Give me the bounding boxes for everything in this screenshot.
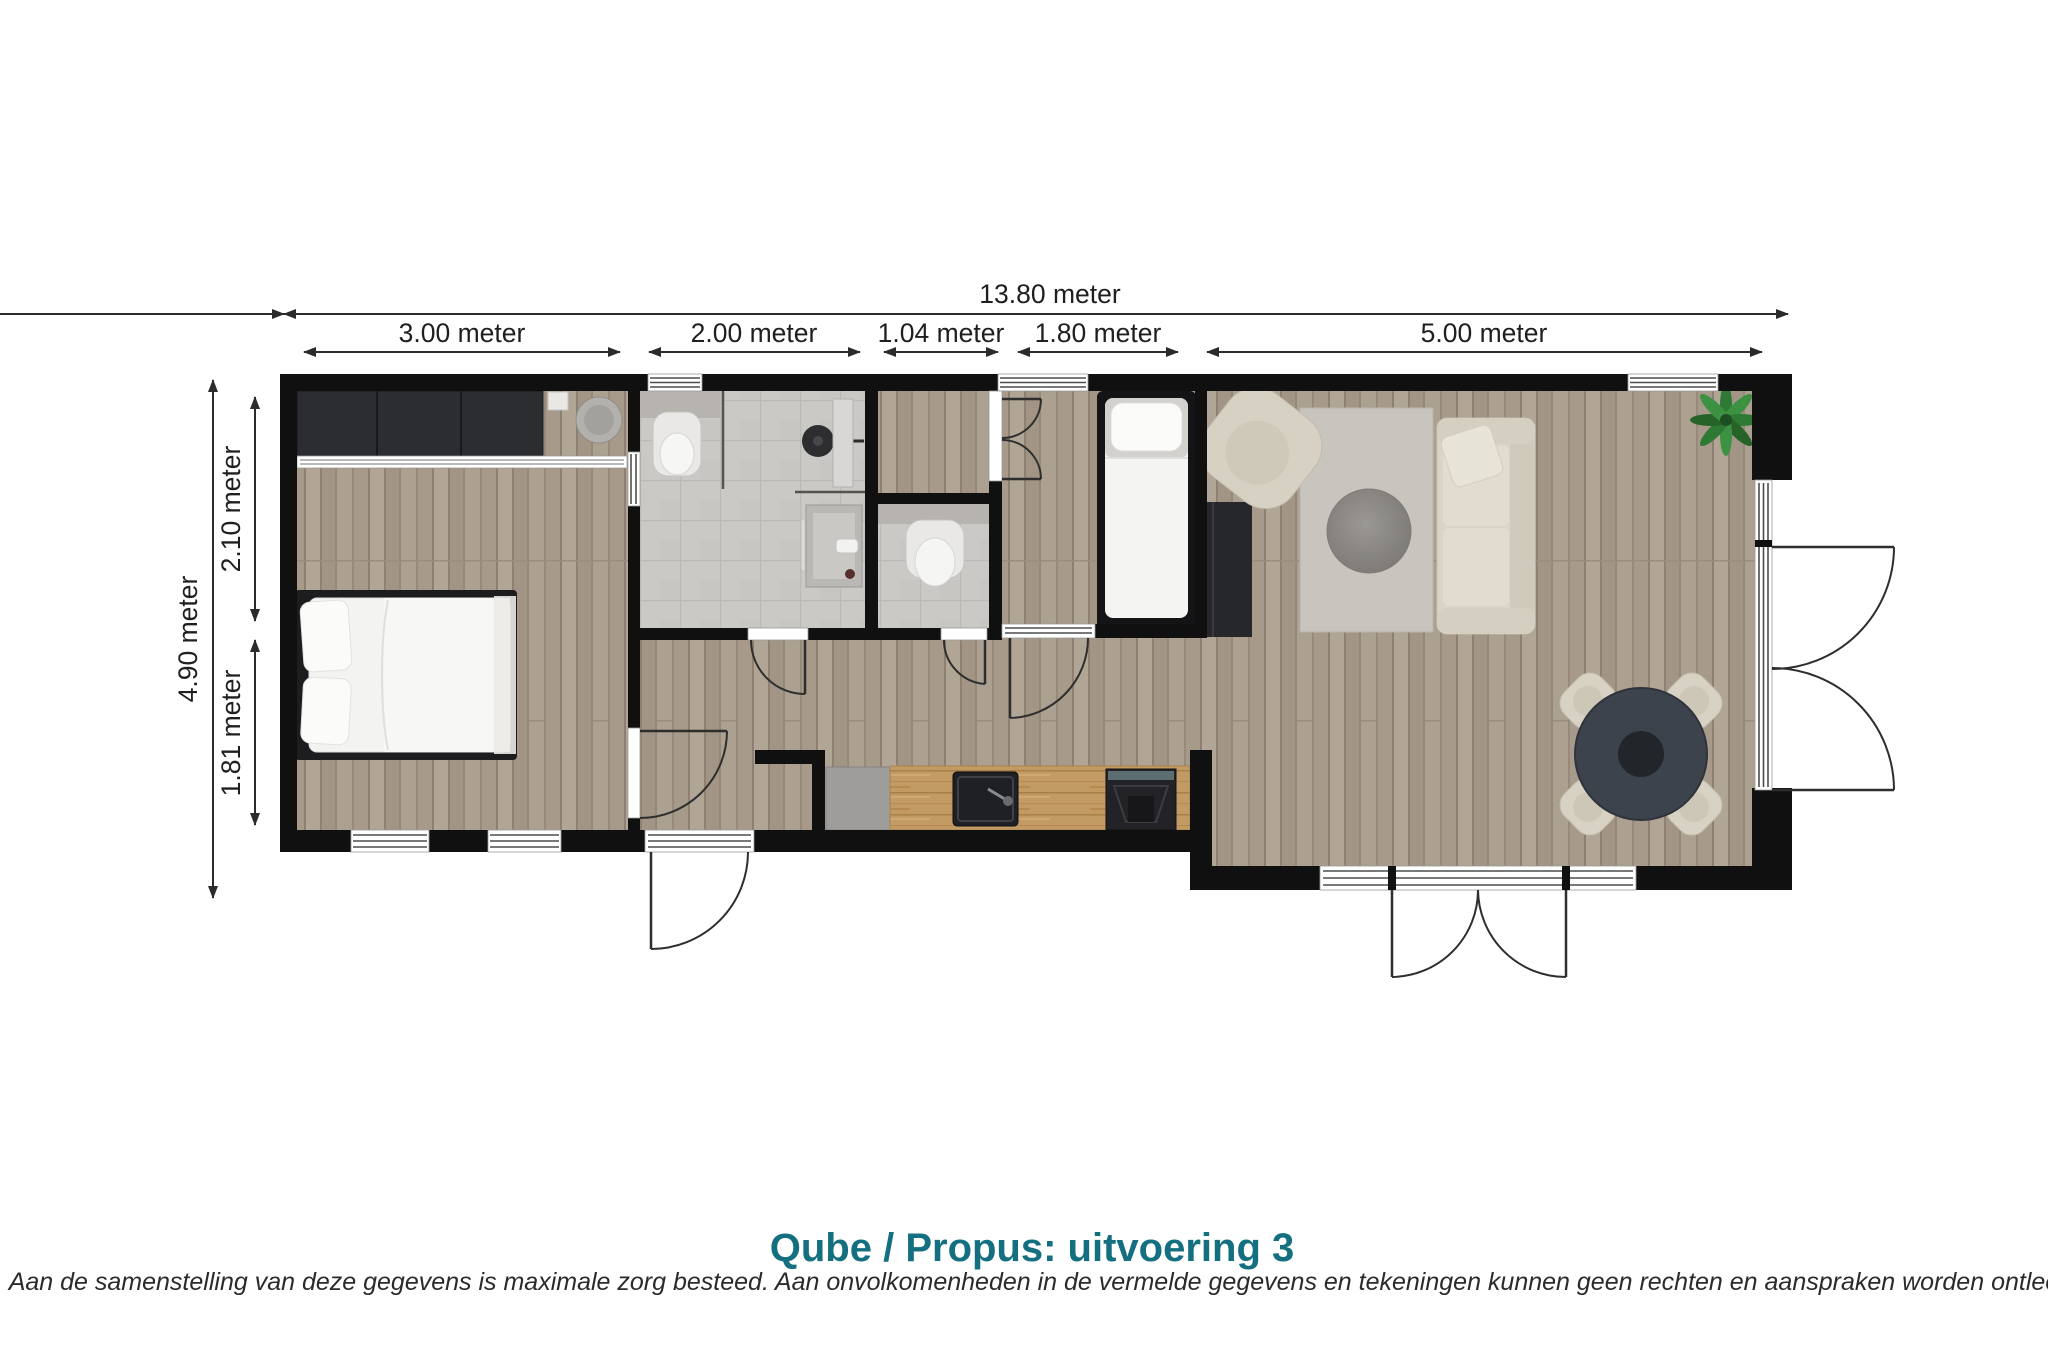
exterior-wall <box>1212 866 1320 890</box>
dimension-label-total-width: 13.80 meter <box>979 279 1121 309</box>
exterior-corner-wall <box>1752 374 1792 480</box>
dining-set <box>1553 666 1728 841</box>
exterior-wall <box>280 830 351 852</box>
plan-title: Qube / Propus: uitvoering 3 <box>770 1226 1295 1270</box>
side-double-doors <box>1772 547 1894 790</box>
pillow <box>1111 403 1182 451</box>
washbasin <box>803 505 862 587</box>
exterior-wall <box>754 830 1212 852</box>
interior-wall <box>1095 624 1207 638</box>
dimension-label: 1.81 meter <box>216 669 246 796</box>
dimension-label: 3.00 meter <box>399 318 526 348</box>
interior-wall <box>628 818 640 852</box>
potted-plant <box>1690 384 1762 456</box>
storage-box <box>548 392 568 410</box>
kitchen-nook-wall <box>812 750 825 830</box>
round-pouf <box>1327 489 1411 573</box>
interior-wall <box>628 374 640 452</box>
exterior-corner-wall <box>1752 788 1792 890</box>
exterior-wall <box>280 374 648 391</box>
sofa <box>1437 418 1535 634</box>
master-bedroom-window <box>488 830 561 852</box>
interior-window <box>628 452 640 506</box>
corridor-nook-floor <box>878 391 989 494</box>
interior-wall <box>808 628 941 640</box>
exterior-wall <box>702 374 998 391</box>
terrace-french-doors <box>1392 890 1566 977</box>
interior-wall <box>989 481 1002 638</box>
interior-wall <box>878 493 989 504</box>
double-bed <box>295 590 517 760</box>
wardrobe-sliding-track <box>297 456 627 468</box>
cooktop <box>1106 769 1176 830</box>
dimension-label-total-depth: 4.90 meter <box>173 575 203 702</box>
floorplan-page: 13.80 meter 3.00 meter 2.00 meter 1.04 m… <box>0 0 2048 1365</box>
exterior-wall <box>429 830 488 852</box>
exterior-wall <box>280 374 297 852</box>
master-bedroom-window <box>351 830 429 852</box>
front-door <box>645 830 754 949</box>
toilet <box>906 520 964 586</box>
fridge <box>826 767 890 830</box>
floorplan-drawing: 13.80 meter 3.00 meter 2.00 meter 1.04 m… <box>0 0 2048 1365</box>
dimension-label: 1.80 meter <box>1035 318 1162 348</box>
laundry-basket <box>576 397 622 443</box>
interior-wall <box>640 628 748 640</box>
pillow <box>300 599 353 672</box>
interior-wall <box>1195 374 1207 638</box>
living-room-bottom-window <box>1320 866 1636 890</box>
interior-wall <box>628 506 640 728</box>
exterior-wall <box>1088 374 1628 391</box>
single-bed <box>1097 391 1196 636</box>
pillow <box>300 677 351 745</box>
exterior-step-wall <box>1190 750 1212 890</box>
interior-wall <box>865 391 878 628</box>
dimension-label: 5.00 meter <box>1421 318 1548 348</box>
bathroom-cabinet <box>833 399 853 487</box>
bathroom-window <box>648 374 702 391</box>
faucet-icon <box>836 539 858 553</box>
disclaimer-text: N.B. Aan de samenstelling van deze gegev… <box>0 1268 2048 1296</box>
bathroom-toilet <box>653 412 701 476</box>
dimension-label: 1.04 meter <box>878 318 1005 348</box>
dimension-label: 2.00 meter <box>691 318 818 348</box>
living-room-top-window <box>1628 374 1718 391</box>
second-bedroom-window <box>998 374 1088 391</box>
living-room-side-window <box>1755 480 1772 790</box>
kitchen-sink <box>953 772 1018 826</box>
dimension-label: 2.10 meter <box>216 445 246 572</box>
